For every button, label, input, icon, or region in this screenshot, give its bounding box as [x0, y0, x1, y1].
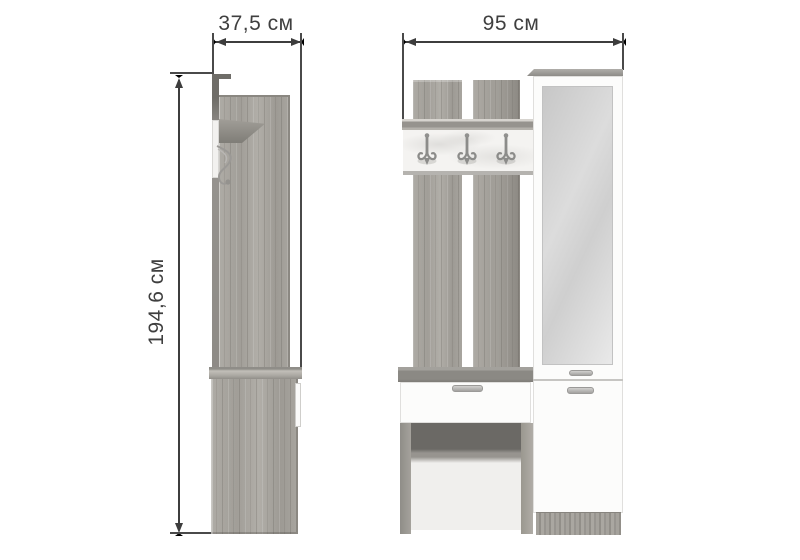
extension-line — [622, 33, 624, 70]
arrowhead-icon — [175, 75, 183, 88]
door-gap-line — [533, 379, 623, 381]
depth-dimension-label: 37,5 см — [196, 11, 316, 37]
extension-line — [300, 33, 302, 368]
side-top-trim — [212, 74, 231, 79]
side-bench-cabinet — [211, 379, 298, 534]
arrowhead-icon — [403, 38, 416, 46]
arrowhead-icon — [175, 523, 183, 536]
drawer-handle — [452, 385, 483, 392]
hook-panel-shadow — [403, 171, 533, 175]
diagram-canvas: 37,5 см 95 см 194,6 см — [0, 0, 800, 560]
extension-line — [170, 532, 212, 534]
side-bench-top — [209, 367, 302, 379]
bench-top — [398, 367, 533, 382]
rack-top-shelf — [402, 119, 533, 130]
height-dimension-label: 194,6 см — [144, 237, 170, 367]
coat-hook-side-icon — [212, 143, 248, 193]
coat-hook-icon — [456, 132, 478, 170]
arrowhead-icon — [213, 38, 226, 46]
width-dimension-label: 95 см — [451, 11, 571, 37]
coat-hook-icon — [416, 132, 438, 170]
cabinet-top-trim — [527, 69, 623, 76]
width-dimension-line — [404, 41, 622, 43]
depth-dimension-line — [214, 41, 301, 43]
height-dimension-line — [178, 80, 180, 527]
coat-hook-icon — [495, 132, 517, 170]
bench-leg-right — [521, 423, 533, 534]
arrowhead-icon — [613, 38, 626, 46]
bench-leg-left — [400, 423, 411, 534]
mirror — [542, 86, 613, 365]
cabinet-plinth — [536, 512, 621, 535]
bench-open-niche — [411, 423, 521, 530]
extension-line — [402, 33, 404, 121]
extension-line — [212, 33, 214, 73]
side-drawer-edge — [295, 383, 301, 427]
mirror-door-handle — [569, 370, 593, 376]
extension-line — [170, 72, 214, 74]
lower-door-handle — [567, 387, 594, 394]
arrowhead-icon — [291, 38, 304, 46]
